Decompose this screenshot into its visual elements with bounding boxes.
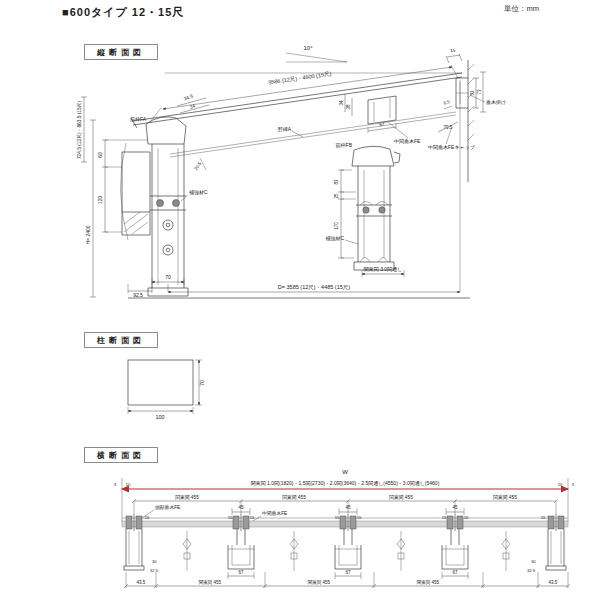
dim-67-3: 67 (452, 570, 458, 575)
edge-dim-10-left: 10 (126, 482, 131, 487)
label-side-rafter: 側部垂木FE (155, 504, 180, 511)
pitch-455-b3: 関東間 455 (417, 580, 440, 586)
pitch-455-b1: 関東間 455 (199, 580, 222, 586)
dim-left-height: 724.5 (12尺)・863.5 (15尺) (77, 101, 82, 160)
vertical-section-drawing (81, 53, 486, 298)
label-reinforce-1: 補強材C (189, 189, 208, 196)
column-width-dim: 100 (155, 414, 164, 420)
dim-67-1: 67 (238, 570, 244, 575)
dim-total-height: H= 2400 (85, 225, 91, 244)
dim-38: 38 (346, 104, 351, 110)
dim-45-3: 45 (452, 505, 458, 510)
dim-60: 60 (98, 152, 103, 158)
label-mid-rafter-cross: 中間垂木FE (262, 510, 287, 516)
dim-170: 170 (334, 222, 339, 230)
column-section-drawing: 100 70 (128, 360, 205, 420)
mid-channels (228, 529, 468, 569)
dim-30-right: 30 (531, 559, 536, 564)
drawing-page: ■600タイプ 12・15尺 単位：mm 縦断面図 柱断面図 横断面図 (0, 0, 600, 600)
dim-43-5-right: 43.5 (549, 580, 558, 585)
dim-15-1b: 15 (250, 515, 255, 520)
dim-15: 15 (450, 48, 456, 54)
dim-32-5-right: 32.5 (527, 568, 536, 573)
label-mid-rafter: 中間垂木FE (394, 138, 421, 145)
dim-6-5: 6.5 (443, 99, 451, 106)
dim-70: 70 (165, 274, 171, 280)
dim-angle: 10° (303, 45, 313, 51)
label-reinforce-2: 補強材C (325, 235, 344, 242)
dim-25: 25 (334, 193, 339, 199)
dim-70-5: 70.5 (444, 125, 453, 130)
vertical-section-texts: 10° 3586 (12尺)・4500 (15尺) 34.5 34 724.5 … (77, 45, 506, 298)
pitch-455-b2: 関東間 455 (308, 580, 331, 586)
edge-dim-3-right: 3 (572, 482, 575, 487)
label-mid-rafter-cap: 中間垂木FEキャップ (428, 144, 476, 151)
dim-83: 83 (334, 179, 339, 185)
label-span-note: 関東間 3.0間通し (364, 266, 402, 273)
label-joist: 野縁A (278, 126, 292, 132)
dim-73: 73 (477, 89, 482, 95)
dim-20-5: 20.5 (193, 161, 202, 171)
edge-dim-10-right: 10 (558, 482, 563, 487)
w-span-text: 関東間 1.0間(1820)・1.5間(2730)・2.0間(3640)・2.5… (251, 480, 440, 487)
edge-dim-3-left: 3 (114, 482, 117, 487)
dim-15-1a: 15 (228, 515, 233, 520)
dim-67-2: 67 (345, 570, 351, 575)
pitch-455-4: 関東間 455 (493, 495, 517, 500)
w-label: W (342, 469, 348, 475)
dim-45-1: 45 (238, 505, 244, 510)
pitch-455-1: 関東間 455 (175, 495, 199, 500)
drawing-canvas: 10° 3586 (12尺)・4500 (15尺) 34.5 34 724.5 … (0, 0, 600, 600)
dim-15-3a: 15 (442, 515, 447, 520)
dim-45-2: 45 (345, 505, 351, 510)
dim-120: 120 (98, 196, 103, 204)
dim-43-5-left: 43.5 (137, 580, 146, 585)
dim-92-5: 92.5 (133, 292, 143, 298)
cross-section-drawing: W 関東間 1.0間(1820)・1.5間(2730)・2.0間(3640)・2… (114, 469, 575, 588)
dim-33: 33 (470, 90, 475, 96)
dim-15-r: 15 (541, 515, 546, 520)
label-front-frame-b: 前枠FB (336, 142, 353, 148)
pitch-455-3: 関東間 455 (389, 495, 413, 500)
dim-30-left: 30 (152, 559, 157, 564)
dim-34-rafter: 34 (339, 100, 344, 106)
column-height-dim: 70 (199, 380, 205, 386)
dim-34-5: 34.5 (183, 94, 194, 102)
dim-depth: D= 3585 (12尺)・4485 (15尺) (278, 284, 350, 290)
dim-32-5-left: 32.5 (150, 568, 159, 573)
dim-15-3b: 15 (464, 515, 469, 520)
dim-15-2b: 15 (357, 515, 362, 520)
label-rafter-hook: 垂木掛け (486, 99, 506, 105)
dim-15-2a: 15 (335, 515, 340, 520)
pitch-455-2: 関東間 455 (282, 495, 306, 500)
label-front-frame-a: 前枠FA (130, 116, 147, 122)
